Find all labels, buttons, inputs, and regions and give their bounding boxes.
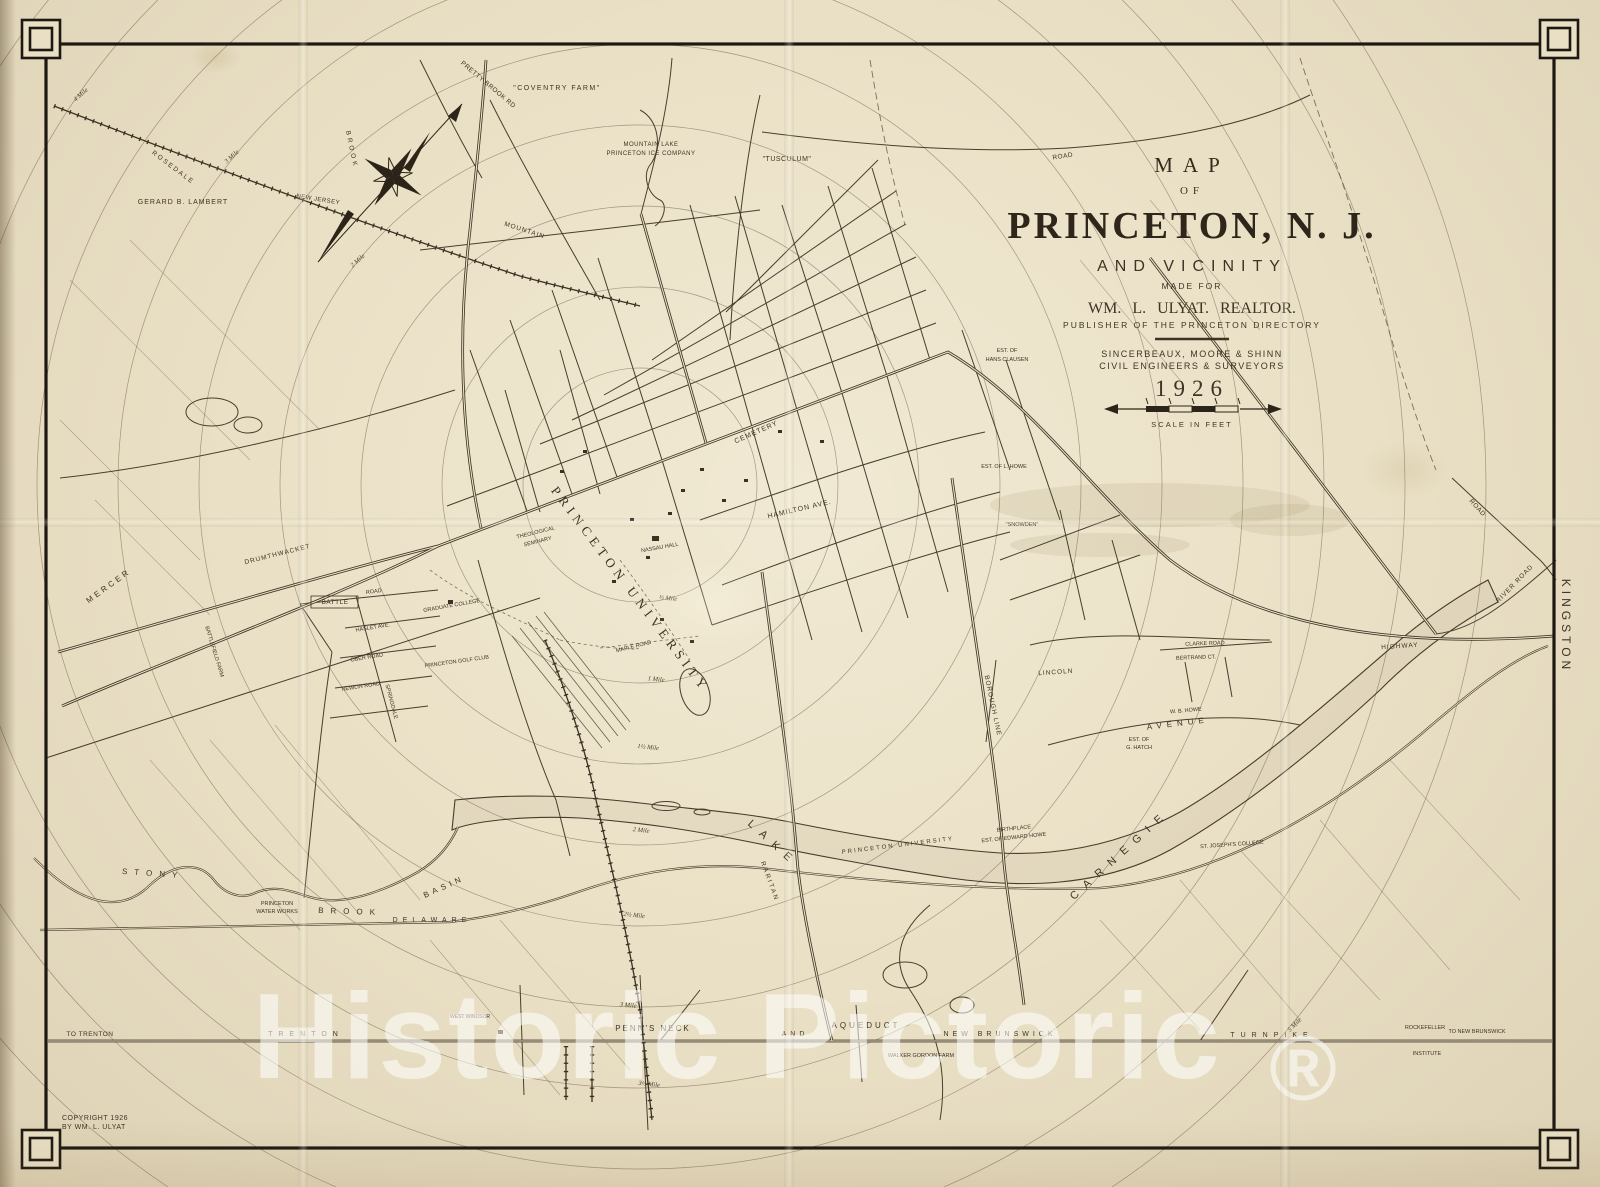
scale-bar [1104,398,1282,414]
label-battle-road: ROAD [366,588,383,596]
label-clarke-road: CLARKE ROAD [1185,640,1225,647]
label-gerard-lambert: GERARD B. LAMBERT [138,199,228,206]
mile-label-2b: 2 Mile [349,253,366,270]
trolley-line [46,598,540,758]
title-city: PRINCETON, N. J. [1007,205,1376,247]
label-rosedale: ROSEDALE [150,150,195,187]
title-made-for: MADE FOR [1162,281,1223,291]
watermark-registered-icon: ® [1269,1018,1337,1120]
label-avenue: AVENUE [1146,715,1209,732]
watermark-text: Historic Pictoric [252,968,1222,1104]
bayard-lane [463,60,486,528]
label-raritan: RARITAN [759,861,780,903]
title-map: MAP [1154,153,1230,177]
stony-brook [34,827,458,902]
title-engineers1: SINCERBEAUX, MOORE & SHINN [1101,349,1283,359]
mile-label-1h: 1½ Mile [637,743,659,752]
mile-label-2h: 2½ Mile [623,911,645,920]
title-vicinity: AND VICINITY [1097,258,1287,275]
label-mountain-lake: MOUNTAIN LAKE [623,142,678,148]
label-nassau-hall: NASSAU HALL [641,542,679,554]
label-golf-club: PRINCETON GOLF CLUB [424,654,490,669]
label-brook: BROOK [318,906,382,917]
label-to-trenton: TO TRENTON [67,1031,114,1038]
label-tusculum: "TUSCULUM" [763,156,812,163]
label-bertrand-ct: BERTRAND CT. [1176,654,1217,661]
compass-rose [318,104,462,262]
label-new-jersey: NEW JERSEY [296,194,340,207]
label-ober: OBER ROAD [350,652,384,663]
label-newlin: NEWLIN ROAD [341,681,380,693]
label-st-josephs: ST. JOSEPH'S COLLEGE [1200,840,1264,850]
title-engineers2: CIVIL ENGINEERS & SURVEYORS [1099,361,1285,371]
title-of: OF [1180,185,1204,197]
mile-label-4: 4 Mile [72,87,89,104]
label-brook-road: BROOK [344,130,359,169]
title-year: 1926 [1155,376,1229,401]
label-institute: INSTITUTE [1413,1051,1442,1057]
nassau-street [58,352,1554,652]
label-ice-company: PRINCETON ICE COMPANY [607,151,696,157]
scanned-historic-map: { "title_block": { "map": "MAP", "of": "… [0,0,1600,1187]
label-haslet: HASLET AVE. [355,622,391,633]
canal [40,646,1548,930]
label-coventry-farm: "COVENTRY FARM" [513,85,601,92]
mile-label-2: 2 Mile [632,826,650,835]
label-est-of-2: EST. OF [1129,737,1150,743]
label-delaware: DELAWARE [393,917,472,924]
label-est-edward-howe: EST. OF EDWARD HOWE [981,832,1047,845]
label-g-hatch: G. HATCH [1126,745,1152,751]
lake-carnegie-outline [452,580,1498,884]
label-princeton-university: PRINCETON UNIVERSITY [548,483,713,695]
label-maple-road: MAPLE ROAD [616,640,652,655]
copyright: COPYRIGHT 1926 BY WM. L. ULYAT [62,1115,128,1131]
label-drumthwacket: DRUMTHWACKET [244,543,311,566]
label-springdale: SPRINGDALE [383,684,398,720]
title-publisher: PUBLISHER OF THE PRINCETON DIRECTORY [1063,320,1321,330]
label-hamilton-ave: HAMILTON AVE. [767,499,832,521]
canal-overlay [40,646,1548,930]
mile-label-half: ½ Mile [659,594,678,603]
label-kingston: KINGSTON [1559,579,1573,673]
harrison-street [952,478,1024,1005]
stony-brook-overlay [34,827,458,902]
label-battle: BATTLE [321,599,348,606]
scale-caption: SCALE IN FEET [1151,420,1232,429]
label-mercer: MERCER [85,567,133,605]
label-pretty-brook-rd: PRETTY BROOK RD [459,60,517,110]
label-basin: BASIN [422,874,466,900]
rail-yard [512,612,630,748]
label-rockefeller: ROCKEFELLER [1405,1025,1445,1031]
title-block: MAP OF PRINCETON, N. J. AND VICINITY MAD… [1007,153,1376,429]
label-road-top: ROAD [1052,152,1074,162]
label-water-works-2: WATER WORKS [256,909,298,915]
label-est-of: EST. OF [997,348,1018,354]
map-canvas: MAP OF PRINCETON, N. J. AND VICINITY MAD… [0,0,1600,1187]
nassau-street-overlay [58,352,1554,652]
bayard-lane-overlay [463,60,486,528]
witherspoon-street-overlay [641,214,706,443]
label-battlefield-farm: BATTLEFIELD FARM [203,626,224,679]
title-client: WM. L. ULYAT. REALTOR. [1088,300,1296,317]
label-snowden: "SNOWDEN" [1006,522,1039,528]
label-to-new-brunswick: TO NEW BRUNSWICK [1448,1029,1505,1035]
label-lincoln: LINCOLN [1038,668,1074,677]
road-top [762,95,1310,150]
rosedale-road [60,390,455,478]
label-est-l-howe: EST. OF L. HOWE [981,464,1027,470]
bleed-through [990,483,1350,557]
label-water-works-1: PRINCETON [261,901,293,907]
copyright-line1: COPYRIGHT 1926 [62,1115,128,1122]
copyright-line2: BY WM. L. ULYAT [62,1124,126,1131]
watermark: Historic Pictoric ® [252,968,1337,1120]
mile-label-3b: 3 Mile [223,149,241,166]
label-hans-clausen: HANS CLAUSEN [986,357,1029,363]
